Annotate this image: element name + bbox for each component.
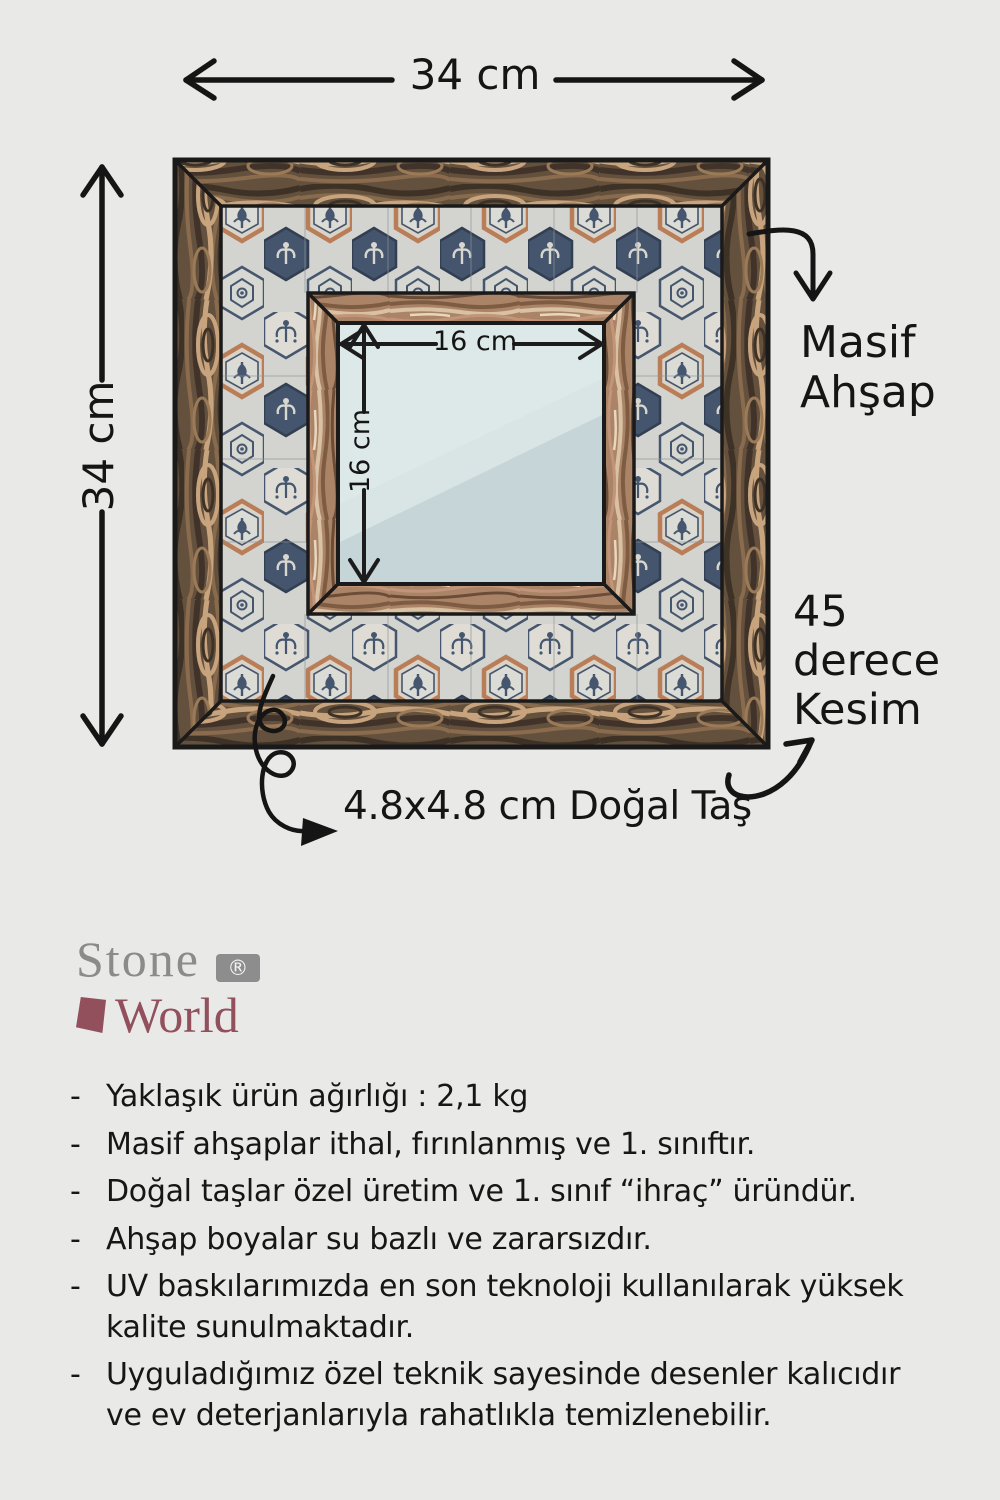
logo-text-world: World xyxy=(115,990,239,1040)
bullet-dash: - xyxy=(70,1355,94,1436)
list-item: - Yaklaşık ürün ağırlığı : 2,1 kg xyxy=(70,1077,960,1118)
feature-list: - Yaklaşık ürün ağırlığı : 2,1 kg - Masi… xyxy=(70,1077,960,1443)
registered-mark: ® xyxy=(227,956,248,980)
product-infographic: 34 cm 34 cm 16 cm 16 cm Masif Ahşap 45 d… xyxy=(0,0,1000,1500)
logo-text-stone: Stone xyxy=(76,934,200,984)
solid-wood-annotation: Masif Ahşap xyxy=(800,318,936,418)
bullet-dash: - xyxy=(70,1220,94,1261)
bullet-dash: - xyxy=(70,1172,94,1213)
bullet-dash: - xyxy=(70,1267,94,1348)
brand-logo: Stone ® World xyxy=(76,934,260,1040)
mirror-height-label: 16 cm xyxy=(345,389,383,513)
list-item: - UV baskılarımızda en son teknoloji kul… xyxy=(70,1267,960,1348)
natural-stone-annotation: 4.8x4.8 cm Doğal Taş xyxy=(343,784,752,829)
list-item: - Doğal taşlar özel üretim ve 1. sınıf “… xyxy=(70,1172,960,1213)
list-item: - Uyguladığımız özel teknik sayesinde de… xyxy=(70,1355,960,1436)
45-degree-cut-annotation: 45 derece Kesim xyxy=(793,588,940,735)
list-item: - Masif ahşaplar ithal, fırınlanmış ve 1… xyxy=(70,1125,960,1166)
registered-trademark-badge: ® xyxy=(216,954,260,982)
height-dimension-label: 34 cm xyxy=(74,376,130,516)
mirror-width-label: 16 cm xyxy=(413,326,537,357)
width-dimension-label: 34 cm xyxy=(390,50,560,99)
logo-stone-shape-icon xyxy=(76,997,106,1033)
bullet-dash: - xyxy=(70,1125,94,1166)
list-item: - Ahşap boyalar su bazlı ve zararsızdır. xyxy=(70,1220,960,1261)
logo-line-1: Stone ® xyxy=(76,934,260,984)
logo-line-2: World xyxy=(76,990,260,1040)
bullet-dash: - xyxy=(70,1077,94,1118)
